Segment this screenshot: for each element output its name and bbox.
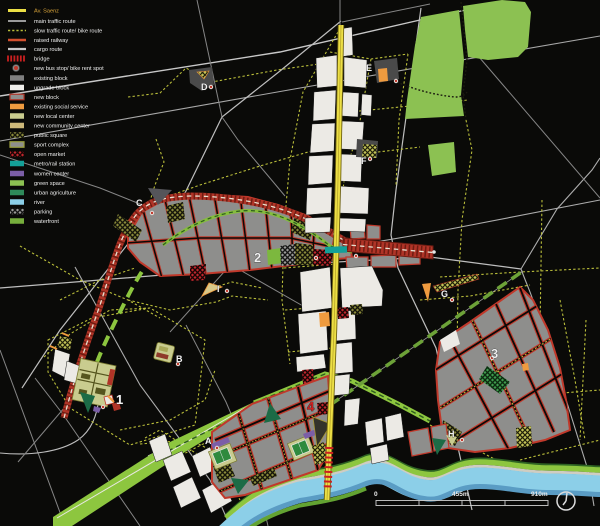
svg-text:existing block: existing block [34, 76, 68, 82]
svg-text:F: F [361, 156, 367, 166]
svg-text:open market: open market [34, 152, 66, 158]
svg-text:3: 3 [491, 346, 498, 361]
svg-text:4: 4 [307, 399, 315, 414]
svg-text:raised railway: raised railway [34, 38, 68, 44]
svg-text:E: E [366, 63, 372, 73]
svg-text:women center: women center [33, 172, 69, 178]
svg-text:D: D [201, 82, 208, 92]
svg-text:urban agriculture: urban agriculture [34, 191, 76, 197]
svg-text:B: B [176, 354, 183, 364]
svg-text:upgrade block: upgrade block [34, 86, 69, 92]
svg-text:H: H [448, 429, 455, 439]
svg-text:1: 1 [116, 392, 123, 407]
svg-text:main traffic route: main traffic route [34, 19, 76, 25]
svg-text:new bus stop/ bike rent spot: new bus stop/ bike rent spot [34, 66, 104, 72]
svg-text:A: A [205, 436, 212, 446]
svg-text:bridge: bridge [34, 57, 50, 63]
svg-text:slow traffic route/ bike route: slow traffic route/ bike route [34, 29, 102, 35]
svg-text:public square: public square [34, 133, 67, 139]
svg-text:parking: parking [34, 210, 52, 216]
svg-text:cargo route: cargo route [34, 47, 62, 53]
svg-text:455m: 455m [452, 491, 469, 498]
svg-text:new local center: new local center [34, 114, 75, 120]
svg-text:existing social service: existing social service [34, 105, 88, 111]
svg-text:2: 2 [254, 250, 261, 265]
svg-text:new block: new block [34, 95, 59, 101]
svg-text:C: C [136, 198, 143, 208]
svg-text:river: river [34, 200, 45, 206]
svg-text:I: I [217, 284, 220, 294]
svg-text:green space: green space [34, 181, 65, 187]
svg-text:metro/rail station: metro/rail station [34, 162, 75, 168]
svg-text:0: 0 [374, 491, 378, 498]
svg-text:Av. Saenz: Av. Saenz [34, 9, 59, 15]
svg-text:waterfront: waterfront [33, 219, 59, 225]
svg-text:new community center: new community center [34, 124, 90, 130]
svg-text:sport complex: sport complex [34, 143, 69, 149]
svg-text:910m: 910m [531, 491, 548, 498]
svg-text:G: G [441, 289, 448, 299]
